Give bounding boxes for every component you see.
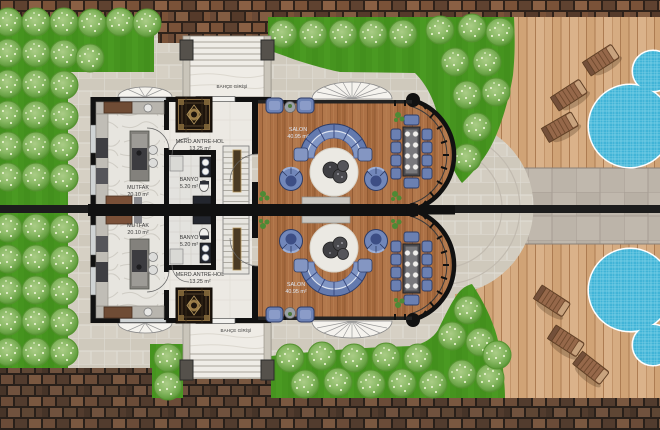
svg-text:MUTFAK: MUTFAK	[127, 223, 149, 229]
svg-text:SALON: SALON	[287, 282, 305, 288]
svg-text:20.10 m²: 20.10 m²	[127, 192, 148, 198]
svg-text:13.25 m²: 13.25 m²	[189, 146, 210, 152]
svg-text:5.20 m²: 5.20 m²	[180, 242, 198, 248]
svg-text:MUTFAK: MUTFAK	[127, 185, 149, 191]
svg-text:20.10 m²: 20.10 m²	[127, 230, 148, 236]
svg-text:BANYO: BANYO	[180, 235, 199, 241]
svg-text:MERD.ANTRE-HOL: MERD.ANTRE-HOL	[176, 272, 225, 278]
svg-text:5.20 m²: 5.20 m²	[180, 184, 198, 190]
svg-text:BANYO: BANYO	[180, 177, 199, 183]
svg-text:BAHÇE GİRİŞİ: BAHÇE GİRİŞİ	[221, 327, 252, 333]
svg-text:40.95 m²: 40.95 m²	[285, 289, 306, 295]
svg-text:MERD.ANTRE-HOL: MERD.ANTRE-HOL	[176, 139, 225, 145]
svg-text:SALON: SALON	[289, 127, 307, 133]
svg-text:13.25 m²: 13.25 m²	[189, 279, 210, 285]
svg-text:40.95 m²: 40.95 m²	[287, 134, 308, 140]
svg-text:BAHÇE GİRİŞİ: BAHÇE GİRİŞİ	[217, 83, 248, 89]
